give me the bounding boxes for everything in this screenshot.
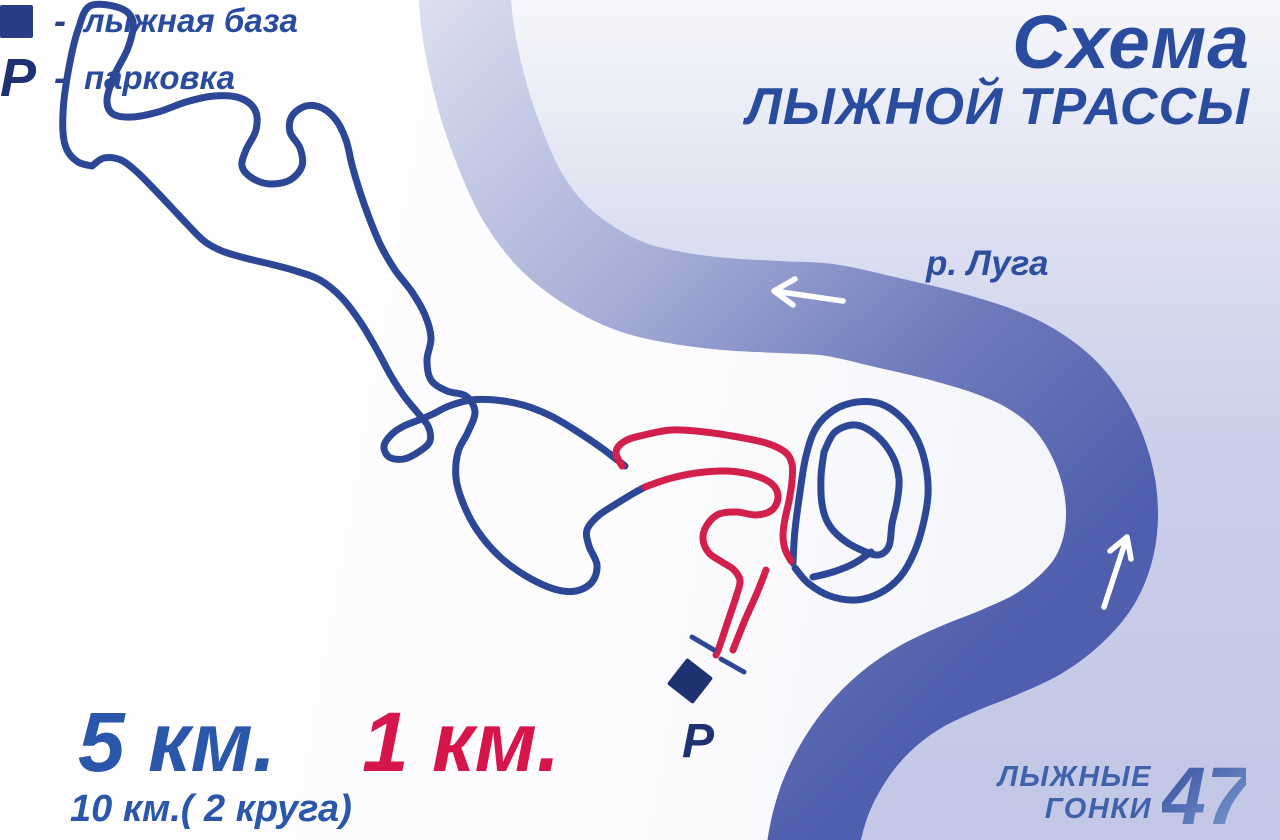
title-block: Схема ЛЫЖНОЙ ТРАССЫ	[746, 4, 1250, 134]
start-finish-tick-1	[692, 637, 714, 650]
start-finish-tick-2	[721, 659, 744, 672]
distance-red-trail: 1 км.	[362, 694, 560, 791]
logo-47-icon: 47	[1162, 748, 1246, 840]
red-trail-back	[645, 471, 778, 655]
red-trail-1km	[616, 430, 793, 655]
logo-line-1: ЛЫЖНЫЕ	[998, 762, 1152, 794]
ear-loop-inner	[821, 425, 899, 555]
event-logo: ЛЫЖНЫЕ ГОНКИ 47	[998, 748, 1246, 840]
page-title: Схема	[746, 4, 1250, 81]
ear-loop-outer	[793, 401, 928, 600]
map-parking-marker: Р	[682, 714, 714, 769]
ear-loop-tail	[813, 552, 871, 577]
trail-map-poster: Схема ЛЫЖНОЙ ТРАССЫ р. Луга - лыжная баз…	[0, 0, 1280, 840]
distance-lap-note: 10 км.( 2 круга)	[70, 788, 352, 831]
page-subtitle: ЛЫЖНОЙ ТРАССЫ	[746, 81, 1250, 134]
distance-blue-trail: 5 км.	[78, 694, 276, 791]
logo-number: 47	[1162, 751, 1246, 840]
logo-line-2: ГОНКИ	[998, 794, 1152, 826]
ski-base-diamond-icon	[667, 658, 713, 704]
logo-text: ЛЫЖНЫЕ ГОНКИ	[998, 762, 1152, 826]
river-label: р. Луга	[926, 244, 1048, 284]
